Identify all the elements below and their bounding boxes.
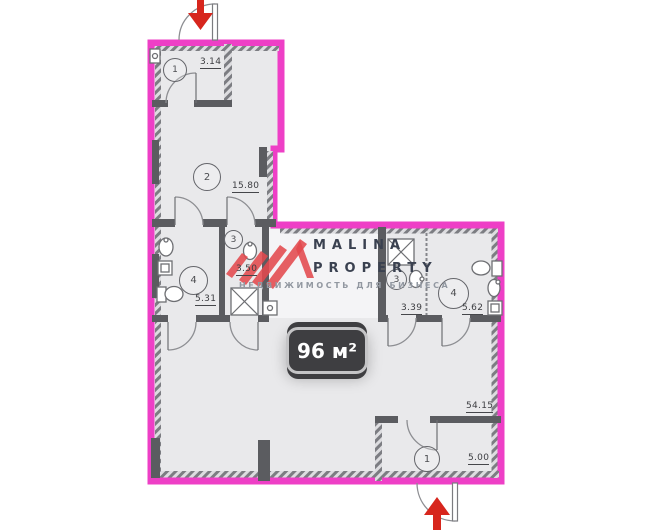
room-area-label: 5.62 (462, 303, 483, 315)
room-area-label: 15.80 (232, 181, 259, 193)
room-number-circle: 1 (414, 446, 440, 472)
door-frame (263, 301, 277, 315)
toilet-icon (157, 287, 183, 303)
entrance-arrow-bottom-icon (424, 497, 450, 530)
watermark-brand-line2: PROPERTY (313, 261, 438, 276)
washer-icon (158, 261, 172, 275)
washer-icon (488, 301, 502, 315)
toilet-icon (472, 261, 502, 276)
room-area-label: 3.14 (200, 57, 221, 69)
room-area-label: 5.00 (468, 453, 489, 465)
dimension-label: 54.15 (466, 401, 493, 413)
room-number-circle: 4 (179, 266, 208, 295)
room-area-label: 3.39 (401, 303, 422, 315)
sink-icon (159, 238, 173, 256)
sink-icon (150, 49, 160, 63)
sink-icon (488, 280, 500, 297)
watermark-tagline: НЕДВИЖИМОСТЬ ДЛЯ БИЗНЕСА (239, 281, 450, 290)
floor-plan-canvas: 1 2 3 4 3 4 1 3.14 15.80 3.50 5.31 3.39 … (0, 0, 662, 530)
room-number-circle: 1 (163, 58, 187, 82)
room-number-circle: 2 (193, 163, 221, 191)
shaft-x-icon (231, 288, 258, 315)
room-area-label: 5.31 (195, 294, 216, 306)
room-area-label: 3.50 (236, 264, 257, 276)
total-area-badge: 96 м² (286, 327, 368, 374)
room-number-circle: 3 (224, 230, 243, 249)
watermark-brand-line1: MALINA (313, 238, 406, 253)
